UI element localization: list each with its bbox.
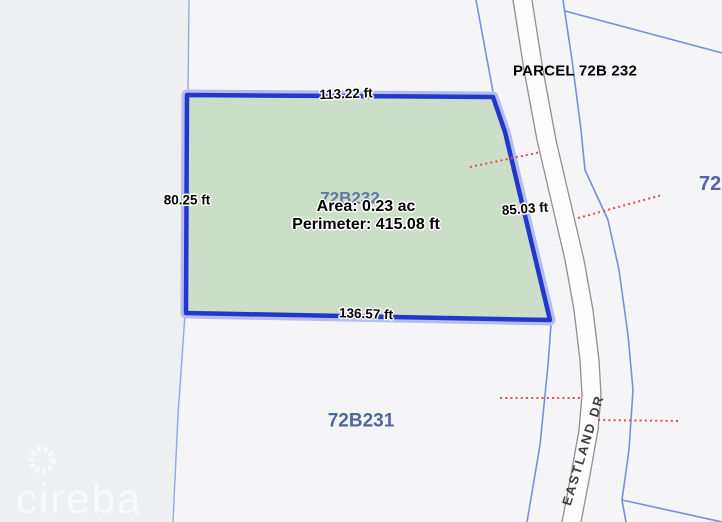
parcel-title-label: PARCEL 72B 232	[513, 64, 637, 79]
leader-line-lower-east	[598, 420, 681, 421]
east-parcel-id-label: 72	[699, 174, 721, 194]
top-edge-measurement: 113.22 ft	[319, 86, 373, 101]
left-edge-measurement: 80.25 ft	[164, 193, 211, 207]
area-label: Area: 0.23 ac	[292, 198, 440, 216]
boundary-line-north	[188, 0, 189, 95]
perimeter-label: Perimeter: 415.08 ft	[292, 216, 440, 234]
parcel-stats: Area: 0.23 ac Perimeter: 415.08 ft	[292, 198, 440, 234]
leader-line-upper-east	[578, 195, 662, 218]
cireba-logo-icon	[26, 444, 58, 476]
cireba-logo-text: cireba	[16, 478, 142, 520]
boundary-line-road-west-upper	[476, 0, 494, 97]
boundary-line-northeast-diagonal	[565, 11, 722, 53]
bottom-edge-measurement: 136.57 ft	[339, 306, 393, 321]
boundary-line-road-west-lower	[527, 325, 551, 522]
cireba-watermark: cireba	[16, 444, 142, 520]
south-parcel-id-label: 72B231	[328, 412, 395, 431]
parcel-map-view[interactable]: PARCEL 72B 232 113.22 ft 80.25 ft 85.03 …	[0, 0, 722, 522]
right-edge-measurement: 85.03 ft	[501, 201, 548, 218]
boundary-line-southeast-branch	[622, 500, 722, 522]
